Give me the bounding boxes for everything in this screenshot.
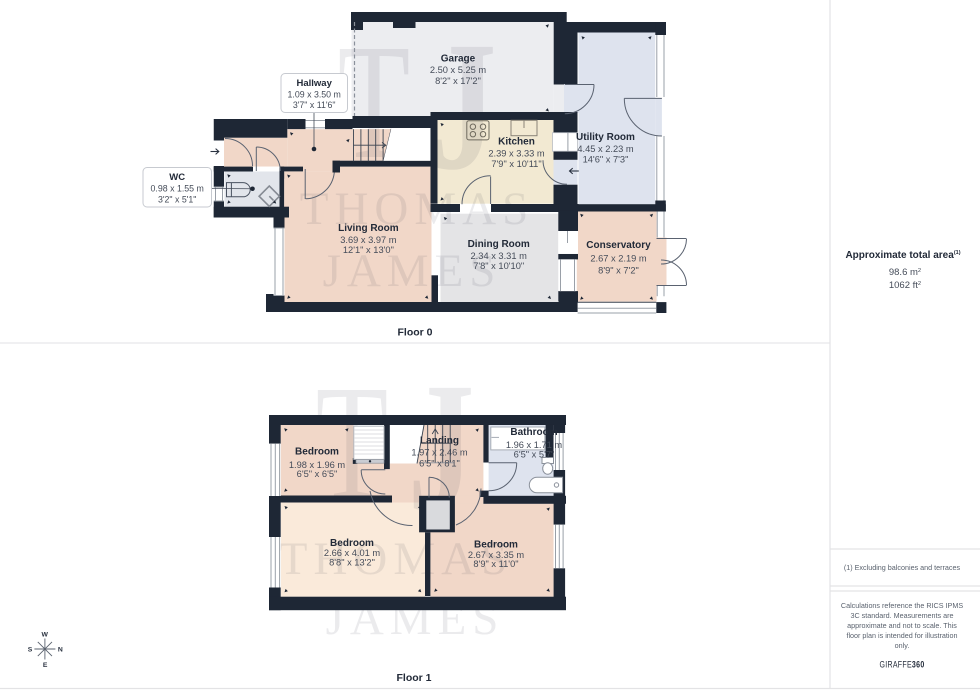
svg-text:Floor 0: Floor 0 — [397, 327, 432, 339]
svg-text:approximate and not to scale.: approximate and not to scale. This — [847, 621, 957, 630]
svg-text:8'9" x 11'0": 8'9" x 11'0" — [473, 559, 518, 569]
svg-text:8'2" x 17'2": 8'2" x 17'2" — [435, 76, 481, 86]
svg-text:Living Room: Living Room — [338, 223, 399, 234]
svg-text:2.66 x 4.01 m: 2.66 x 4.01 m — [324, 548, 381, 558]
svg-text:3'7" x 11'6": 3'7" x 11'6" — [293, 100, 336, 110]
svg-text:N: N — [58, 647, 63, 654]
svg-text:J: J — [430, 3, 497, 208]
svg-text:Conservatory: Conservatory — [586, 240, 651, 251]
svg-text:Approximate total area(1): Approximate total area(1) — [845, 250, 960, 261]
svg-text:14'6" x 7'3": 14'6" x 7'3" — [583, 154, 629, 164]
svg-text:Bedroom: Bedroom — [295, 446, 339, 457]
svg-text:only.: only. — [895, 641, 910, 650]
svg-text:1.96 x 1.71 m: 1.96 x 1.71 m — [506, 440, 563, 450]
svg-text:4.45 x 2.23 m: 4.45 x 2.23 m — [577, 144, 634, 154]
svg-text:Hallway: Hallway — [297, 78, 333, 89]
svg-text:7'8" x 10'10": 7'8" x 10'10" — [473, 261, 524, 271]
svg-text:Garage: Garage — [441, 53, 476, 64]
svg-text:98.6 m2: 98.6 m2 — [889, 267, 921, 278]
svg-text:(1) Excluding balconies and te: (1) Excluding balconies and terraces — [844, 563, 961, 572]
svg-text:2.67 x 2.19 m: 2.67 x 2.19 m — [590, 253, 647, 263]
svg-text:floor plan is intended for ill: floor plan is intended for illustration — [846, 631, 957, 640]
svg-text:2.34 x 3.31 m: 2.34 x 3.31 m — [471, 251, 528, 261]
svg-text:0.98 x 1.55 m: 0.98 x 1.55 m — [151, 184, 204, 194]
svg-text:1.97 x 2.46 m: 1.97 x 2.46 m — [411, 448, 468, 458]
svg-text:12'1" x 13'0": 12'1" x 13'0" — [343, 245, 394, 255]
svg-text:E: E — [43, 662, 48, 669]
svg-text:1062 ft2: 1062 ft2 — [889, 280, 921, 291]
svg-text:Utility Room: Utility Room — [576, 132, 635, 143]
svg-text:6'5" x 6'5": 6'5" x 6'5" — [297, 469, 338, 479]
svg-text:3.69 x 3.97 m: 3.69 x 3.97 m — [340, 235, 397, 245]
svg-text:S: S — [28, 647, 33, 654]
svg-text:2.50 x 5.25 m: 2.50 x 5.25 m — [430, 65, 487, 75]
svg-text:3'2" x 5'1": 3'2" x 5'1" — [158, 194, 196, 204]
svg-text:Calculations reference the RIC: Calculations reference the RICS IPMS — [841, 601, 963, 610]
svg-text:W: W — [41, 631, 48, 638]
svg-text:6'5" x 5'7": 6'5" x 5'7" — [514, 449, 555, 459]
svg-text:3C standard. Measurements are: 3C standard. Measurements are — [850, 611, 953, 620]
svg-text:8'9" x 7'2": 8'9" x 7'2" — [598, 265, 639, 275]
svg-text:2.39 x 3.33 m: 2.39 x 3.33 m — [488, 148, 545, 158]
svg-text:Floor 1: Floor 1 — [396, 672, 431, 684]
svg-text:1.09 x 3.50 m: 1.09 x 3.50 m — [288, 89, 341, 99]
svg-text:Dining Room: Dining Room — [468, 239, 530, 250]
svg-text:7'9" x 10'11": 7'9" x 10'11" — [491, 159, 541, 169]
svg-text:GIRAFFE360: GIRAFFE360 — [879, 658, 924, 669]
svg-text:Bedroom: Bedroom — [474, 539, 518, 550]
svg-text:Landing: Landing — [420, 436, 459, 447]
svg-text:6'5" x 8'1": 6'5" x 8'1" — [419, 458, 460, 468]
svg-text:Kitchen: Kitchen — [498, 137, 535, 148]
svg-text:WC: WC — [169, 172, 185, 183]
svg-text:8'8" x 13'2": 8'8" x 13'2" — [329, 557, 375, 567]
svg-text:Bathroom: Bathroom — [510, 427, 557, 438]
